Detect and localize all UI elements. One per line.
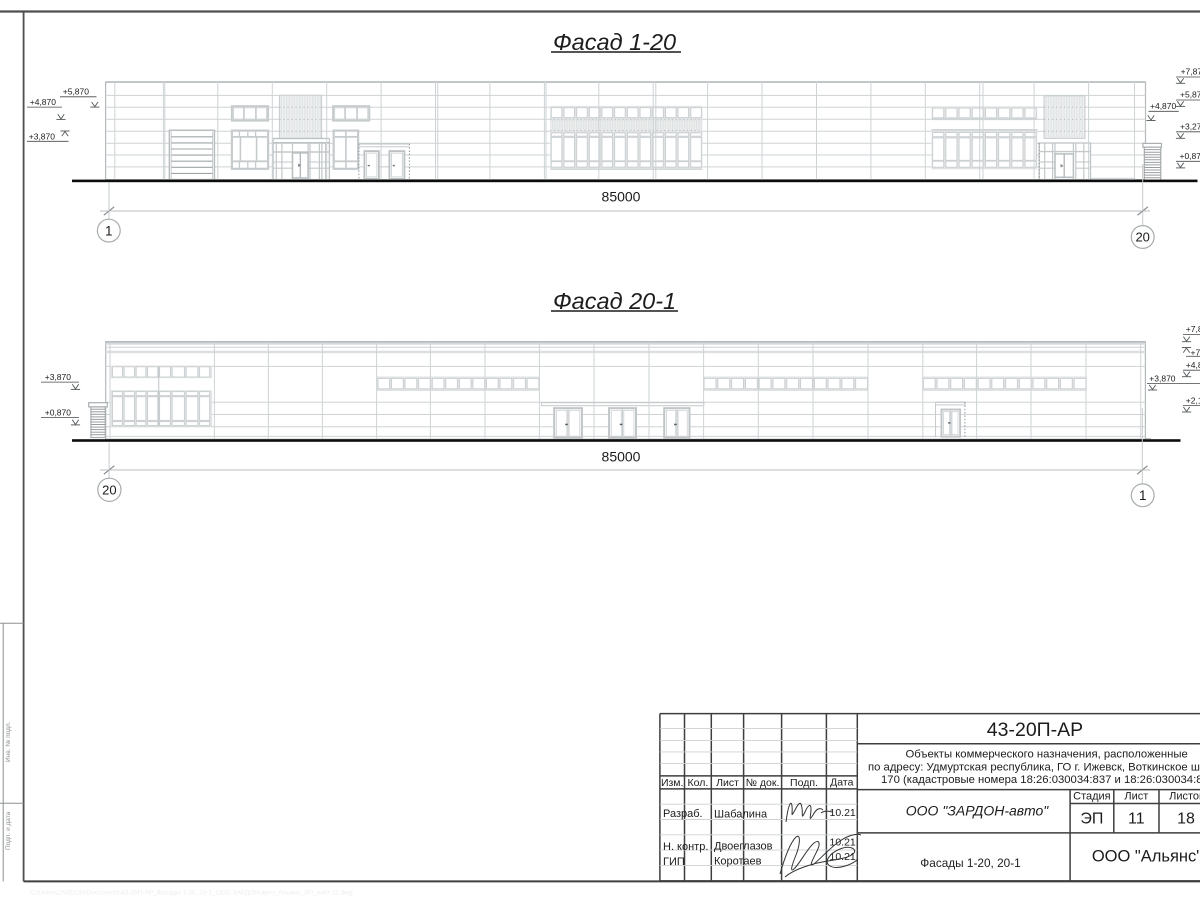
svg-text:Изм.: Изм.: [661, 777, 684, 789]
svg-text:20: 20: [102, 483, 116, 498]
svg-text:+0,87: +0,87: [1180, 151, 1200, 161]
svg-text:Объекты коммерческого назначен: Объекты коммерческого назначения, распол…: [906, 749, 1188, 761]
svg-text:Фасад 20-1: Фасад 20-1: [553, 288, 676, 314]
svg-text:+5,870: +5,870: [63, 87, 90, 97]
svg-text:+7,8: +7,8: [1186, 324, 1200, 334]
svg-text:+3,870: +3,870: [1149, 373, 1176, 383]
svg-text:10.21: 10.21: [830, 837, 856, 849]
svg-text:Коротаев: Коротаев: [714, 855, 762, 867]
svg-text:85000: 85000: [602, 449, 641, 465]
svg-text:ГИП: ГИП: [663, 856, 685, 868]
svg-text:170 (кадастровые номера 18:26:: 170 (кадастровые номера 18:26:030034:837…: [881, 774, 1200, 786]
svg-text:1: 1: [1139, 488, 1147, 503]
svg-text:Листов: Листов: [1169, 791, 1200, 803]
svg-text:20: 20: [1135, 230, 1149, 245]
svg-text:+3,870: +3,870: [29, 131, 56, 141]
svg-text:Лист: Лист: [1124, 791, 1148, 803]
svg-text:+7,87: +7,87: [1181, 67, 1200, 77]
svg-text:+4,870: +4,870: [30, 97, 57, 107]
svg-text:+4,8: +4,8: [1186, 360, 1200, 370]
svg-text:+2,1: +2,1: [1186, 395, 1200, 405]
svg-text:Инв. № подл.: Инв. № подл.: [5, 721, 12, 762]
svg-text:10.21: 10.21: [830, 807, 856, 819]
svg-text:18: 18: [1177, 811, 1195, 828]
svg-text:+5,87: +5,87: [1180, 90, 1200, 100]
svg-text:ООО "Альянс": ООО "Альянс": [1092, 848, 1200, 866]
svg-text:Подп. и дата: Подп. и дата: [5, 811, 12, 850]
svg-text:по адресу: Удмуртская республи: по адресу: Удмуртская республика, ГО г. …: [868, 761, 1200, 773]
svg-text:+4,870: +4,870: [1150, 101, 1177, 111]
svg-text:43-20П-АР: 43-20П-АР: [987, 719, 1083, 741]
svg-text:1: 1: [105, 223, 113, 238]
svg-text:Фасады 1-20, 20-1: Фасады 1-20, 20-1: [920, 856, 1020, 870]
svg-text:Стадия: Стадия: [1073, 791, 1111, 803]
svg-text:Подп.: Подп.: [790, 777, 818, 789]
svg-text:Фасад 1-20: Фасад 1-20: [553, 29, 676, 55]
svg-text:Н. контр.: Н. контр.: [663, 841, 708, 853]
svg-text:85000: 85000: [602, 188, 641, 204]
svg-text:+3,27: +3,27: [1180, 121, 1200, 131]
svg-text:Лист: Лист: [716, 777, 739, 789]
svg-text:№ док.: № док.: [746, 777, 780, 789]
svg-text:C:\Users\ZARDON\Documents\43-2: C:\Users\ZARDON\Documents\43-20П-АР_Фаса…: [30, 890, 353, 897]
svg-text:+0,870: +0,870: [45, 407, 72, 417]
svg-text:Кол.: Кол.: [688, 777, 709, 789]
svg-text:Разраб.: Разраб.: [663, 808, 703, 820]
svg-text:Двоеглазов: Двоеглазов: [714, 840, 773, 852]
svg-text:Шабалина: Шабалина: [714, 809, 768, 821]
svg-text:ЭП: ЭП: [1080, 811, 1103, 828]
svg-text:+3,870: +3,870: [45, 372, 72, 382]
svg-text:ООО "ЗАРДОН-авто": ООО "ЗАРДОН-авто": [906, 803, 1049, 819]
svg-text:Дата: Дата: [830, 776, 853, 788]
svg-text:11: 11: [1128, 811, 1145, 828]
